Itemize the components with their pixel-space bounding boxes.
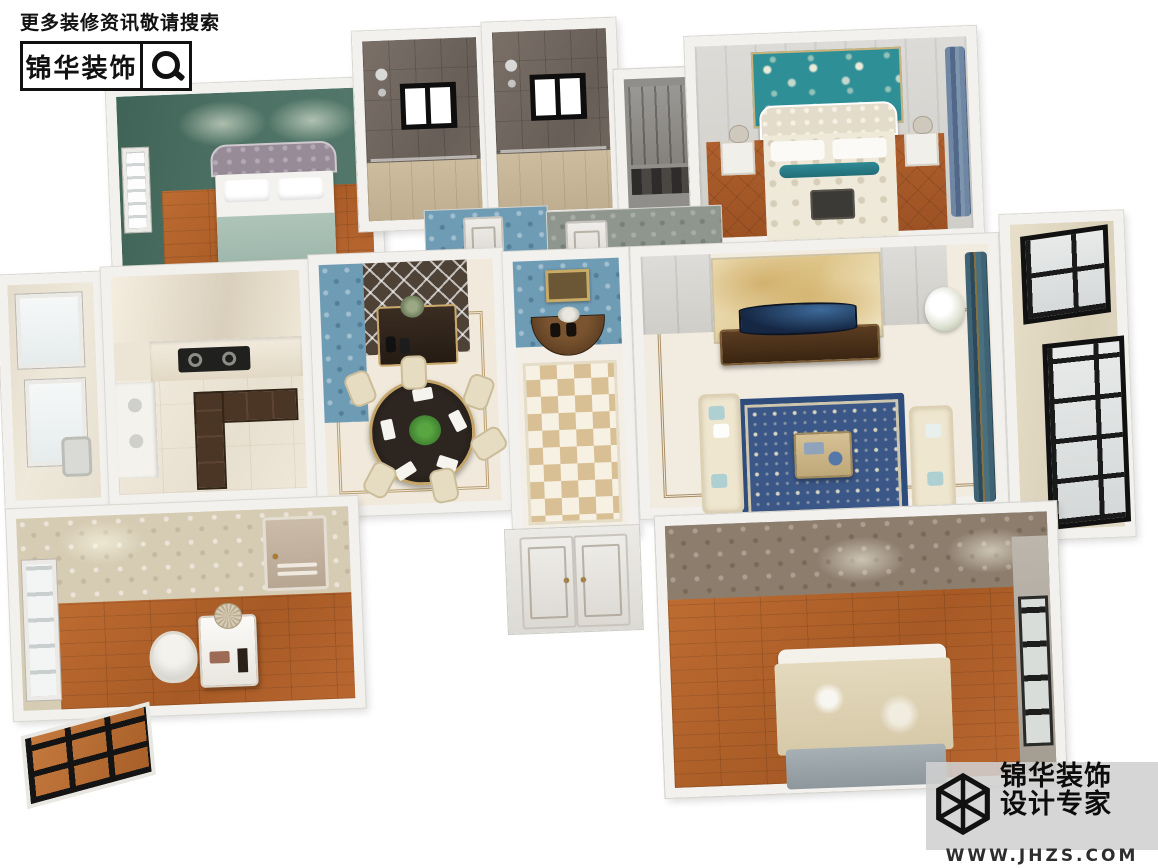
south-bedroom-window bbox=[1018, 595, 1054, 746]
south-bed-gray-throw bbox=[786, 743, 947, 789]
shower-head-icon bbox=[505, 59, 517, 71]
watermark-brand-name: 锦华装饰 bbox=[23, 44, 140, 88]
balcony-window-upper bbox=[16, 292, 85, 368]
room-entry-hall bbox=[502, 247, 639, 540]
master-curtains bbox=[945, 46, 972, 217]
table-lamp bbox=[729, 125, 750, 144]
faucet bbox=[129, 434, 144, 449]
door-handle bbox=[564, 578, 569, 583]
watermark-brand-line2: 设计专家 bbox=[1000, 791, 1158, 819]
bedroom-window bbox=[122, 148, 151, 233]
bathroom-floor bbox=[497, 150, 613, 212]
table-centerpiece-plant bbox=[408, 415, 441, 446]
shower-head-icon bbox=[375, 68, 387, 80]
gas-stove bbox=[178, 346, 251, 373]
master-pillows bbox=[770, 140, 825, 162]
watermark-brand-line1: 锦华装饰 bbox=[1000, 763, 1158, 791]
stove-burner bbox=[188, 353, 203, 368]
ceiling-light-glow bbox=[266, 96, 358, 145]
study-window bbox=[22, 559, 61, 700]
room-bathroom-right bbox=[481, 18, 623, 223]
nightstand-right bbox=[904, 131, 939, 166]
south-bed-blanket bbox=[774, 657, 953, 756]
room-study bbox=[6, 496, 366, 721]
vases bbox=[385, 336, 396, 352]
magnifier-handle bbox=[172, 69, 186, 82]
console-flowers bbox=[557, 306, 580, 323]
watermark-brand-block: 锦华装饰 设计专家 bbox=[1000, 763, 1158, 820]
watermark-top-left: 更多装修资讯敬请搜索 锦华装饰 bbox=[20, 8, 220, 91]
room-bedroom-south bbox=[655, 501, 1068, 798]
study-door bbox=[262, 515, 329, 591]
room-sun-balcony bbox=[999, 210, 1135, 541]
room-service-balcony bbox=[0, 271, 112, 511]
entry-painting bbox=[545, 269, 590, 303]
magnifier-icon bbox=[140, 44, 189, 88]
study-desk bbox=[198, 614, 259, 688]
plant-on-sideboard bbox=[400, 295, 425, 318]
bed-pillow bbox=[277, 177, 324, 201]
door-handle bbox=[581, 577, 586, 582]
sofa-pillow bbox=[925, 423, 942, 438]
door-knob bbox=[273, 554, 278, 559]
room-bathroom-left bbox=[352, 27, 494, 232]
kitchen-sink-counter bbox=[115, 382, 159, 479]
entry-door-leaf-left bbox=[519, 536, 576, 630]
table-decor-vase bbox=[828, 451, 843, 466]
room-kitchen bbox=[101, 260, 318, 506]
breakfast-tray bbox=[810, 189, 855, 221]
coffee-table bbox=[793, 431, 853, 479]
entry-tile-floor bbox=[523, 360, 623, 525]
watermark-bottom-right: 锦华装饰 设计专家 WWW.JHZS.COM bbox=[926, 762, 1158, 850]
kitchen-gloss-ceiling bbox=[111, 270, 301, 343]
place-setting bbox=[448, 409, 468, 432]
stove-burner bbox=[222, 351, 237, 366]
entry-door-wall bbox=[505, 525, 643, 634]
laundry-sink bbox=[61, 436, 93, 477]
dining-chair bbox=[400, 355, 427, 390]
living-wall-panels-left bbox=[641, 254, 714, 335]
floorplan-render: 更多装修资讯敬请搜索 锦华装饰 锦华装饰 设计专家 WWW.JHZS.COM bbox=[0, 0, 1158, 868]
entry-door-leaf-right bbox=[573, 534, 630, 628]
desk-book bbox=[209, 651, 229, 664]
balcony-window-top bbox=[1020, 224, 1111, 325]
bathroom-window-panes bbox=[560, 78, 581, 115]
nightstand-left bbox=[720, 140, 755, 175]
sofa-pillow bbox=[708, 406, 725, 421]
ceiling-light-glow bbox=[176, 99, 268, 148]
room-dining bbox=[308, 248, 512, 517]
watermark-search-box: 锦华装饰 bbox=[20, 41, 192, 91]
master-bed bbox=[759, 101, 902, 248]
room-master-bedroom bbox=[684, 26, 984, 249]
sofa-right bbox=[909, 405, 957, 513]
curved-tv bbox=[738, 301, 857, 338]
sofa-pillow bbox=[713, 424, 730, 439]
master-pillows bbox=[832, 137, 887, 159]
door-moulding bbox=[277, 562, 317, 568]
bed-secondary bbox=[210, 140, 341, 271]
console-vases bbox=[550, 323, 561, 337]
table-lamp bbox=[912, 115, 933, 134]
bathroom-window-panes bbox=[535, 79, 556, 116]
sofa-left bbox=[698, 393, 745, 515]
desk-organizer bbox=[237, 648, 248, 672]
place-setting bbox=[380, 419, 396, 441]
console-table bbox=[531, 314, 606, 357]
sofa-pillow bbox=[927, 471, 944, 486]
wireframe-cube-logo-icon bbox=[931, 772, 995, 836]
faucet bbox=[128, 398, 143, 413]
desk-lamp bbox=[214, 602, 243, 629]
place-setting bbox=[394, 461, 417, 482]
watermark-search-hint: 更多装修资讯敬请搜索 bbox=[20, 8, 220, 35]
bed-pillow bbox=[223, 179, 270, 203]
table-decor bbox=[804, 442, 824, 455]
kitchen-cabinets bbox=[193, 391, 227, 490]
watermark-website: WWW.JHZS.COM bbox=[926, 846, 1158, 866]
apartment-plan bbox=[0, 0, 1158, 868]
bathroom-window-panes bbox=[405, 88, 426, 125]
bathroom-window-panes bbox=[430, 87, 451, 124]
room-living bbox=[630, 233, 1008, 519]
room-bedroom-secondary bbox=[106, 77, 385, 283]
sofa-pillow bbox=[711, 474, 728, 489]
